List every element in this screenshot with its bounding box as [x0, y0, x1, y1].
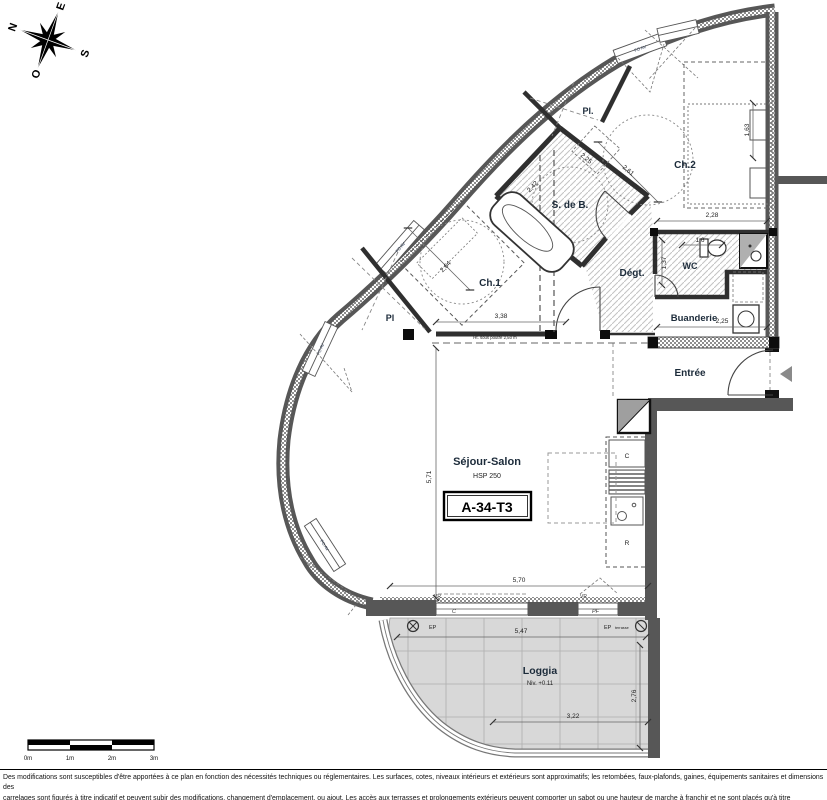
dim-5-71: 5,71 — [426, 470, 433, 483]
compass-west: O — [30, 68, 44, 81]
compass-east: E — [54, 1, 68, 12]
dim-1-63: 1,63 — [744, 123, 751, 136]
scale-1m: 1m — [66, 756, 74, 762]
washbasin-unit — [740, 234, 767, 268]
room-label-pl-ch1: Pl — [386, 313, 395, 323]
dim-5-70: 5,70 — [513, 577, 526, 584]
room-label-pl-corridor: Pl. — [582, 106, 593, 116]
dim-2-25-buanderie: 2,25 — [716, 318, 729, 325]
dim-5-47: 5,47 — [515, 628, 528, 635]
vr-label-right: VR — [580, 594, 587, 600]
dim-2-28: 2,28 — [706, 212, 719, 219]
room-label-entree: Entrée — [674, 368, 706, 379]
loggia-doors: C PF VR VR — [434, 578, 618, 615]
shaft — [618, 400, 650, 433]
ep-label-right: EP — [604, 625, 612, 631]
floor-plan-drawing: FO AV FO AV FO AV FO AV C PF VR VR — [0, 0, 827, 800]
plan-code-box: A-34-T3 — [444, 492, 531, 520]
scale-2m: 2m — [108, 756, 116, 762]
scale-bar: 0m 1m 2m 3m — [24, 740, 158, 762]
dim-3-22: 3,22 — [567, 713, 580, 720]
ep-label-left: EP — [429, 625, 437, 631]
room-label-ch1: Ch.1 — [479, 278, 501, 289]
vr-label-left: VR — [434, 594, 441, 600]
window-label-sliding: C — [452, 609, 456, 615]
kitchen-vent — [609, 470, 645, 494]
kitchen-label-r: R — [625, 540, 630, 547]
room-label-sdb: S. de B. — [552, 200, 589, 211]
room-note-niv: Niv. +0.11 — [527, 681, 554, 687]
room-label-ch2: Ch.2 — [674, 160, 696, 171]
room-label-loggia: Loggia — [523, 665, 558, 677]
washing-machine — [733, 272, 763, 333]
entrance-arrow-icon — [780, 366, 792, 382]
bed-ch2 — [684, 62, 772, 208]
compass-icon: N S E O — [0, 0, 105, 94]
kitchen-label-c: C — [625, 453, 630, 460]
dim-1-37: 1,37 — [661, 256, 668, 269]
compass-south: S — [79, 48, 93, 59]
window-label-pf: PF — [592, 609, 600, 615]
scale-0m: 0m — [24, 756, 32, 762]
room-label-wc: WC — [683, 261, 698, 271]
dim-1-6: 1,6 — [695, 237, 704, 244]
room-label-buanderie: Buanderie — [671, 313, 717, 324]
footer-line-2: carrelages sont figurés à titre indicati… — [3, 794, 824, 800]
footer-disclaimer: Des modifications sont susceptibles d'êt… — [0, 769, 827, 800]
plan-code: A-34-T3 — [461, 499, 513, 515]
room-label-degt: Dégt. — [620, 268, 645, 279]
dim-2-76: 2,76 — [631, 689, 638, 702]
floor-plan-page: FO AV FO AV FO AV FO AV C PF VR VR — [0, 0, 827, 800]
room-note-hsp: HSP 250 — [473, 473, 501, 480]
footer-line-1: Des modifications sont susceptibles d'êt… — [3, 773, 824, 794]
dim-2-64: 2,64 — [439, 260, 453, 274]
ep-label-right-sub: terrasse — [615, 626, 629, 630]
room-label-sejour: Séjour-Salon — [453, 456, 521, 468]
scale-3m: 3m — [150, 756, 158, 762]
dim-3-38: 3,38 — [495, 313, 508, 320]
compass-north: N — [6, 22, 20, 34]
beam-note: Ht. sous poutre 2,50 m — [473, 335, 517, 340]
